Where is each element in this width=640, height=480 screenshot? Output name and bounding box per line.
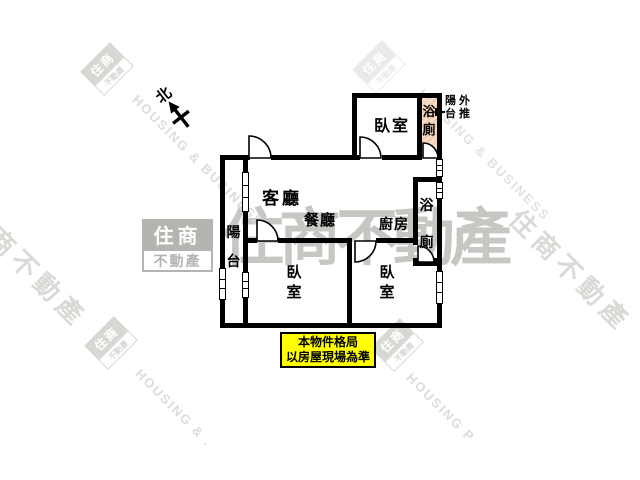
bathroom-top-door-arc: [423, 143, 438, 158]
pushout-balcony-note: 陽外 台推: [445, 95, 475, 121]
label-bedroom-top: 臥室: [374, 112, 410, 136]
disclaimer-line2: 以房屋現場為準: [282, 350, 374, 365]
disclaimer-line1: 本物件格局: [282, 335, 374, 350]
window: [436, 182, 443, 199]
bedroom-left-door-arc: [257, 220, 278, 241]
window: [242, 272, 249, 298]
entrance-door-arc: [249, 136, 271, 158]
label-kitchen: 廚房: [379, 214, 409, 234]
pushout-note-row1: 陽外: [445, 95, 475, 108]
window: [219, 268, 226, 300]
label-bathroom-mid: 浴廁: [419, 187, 434, 261]
floor-plan-image: 住商不動產 住商 不動產 住商 不動產 住商 不動產 住商 不動產 住商 不動產…: [0, 0, 640, 480]
pushout-note-row2: 台推: [445, 108, 475, 121]
bedroom-right-door-arc: [355, 241, 376, 262]
bedroom-top-door-arc: [360, 137, 381, 158]
door-arcs: [0, 0, 640, 480]
label-bedroom-left: 臥室: [286, 263, 302, 303]
label-bathroom-top: 浴廁: [422, 103, 436, 139]
window: [436, 159, 443, 177]
pushout-pointer-line: [436, 111, 445, 113]
label-bedroom-right: 臥室: [379, 263, 395, 303]
pushout-pointer-tick: [435, 108, 437, 116]
label-dining-room: 餐廳: [304, 209, 336, 230]
disclaimer-note: 本物件格局 以房屋現場為準: [280, 332, 376, 368]
window: [436, 271, 443, 304]
label-balcony: 陽台: [226, 218, 241, 276]
label-living-room: 客廳: [262, 184, 302, 209]
window: [242, 172, 249, 212]
